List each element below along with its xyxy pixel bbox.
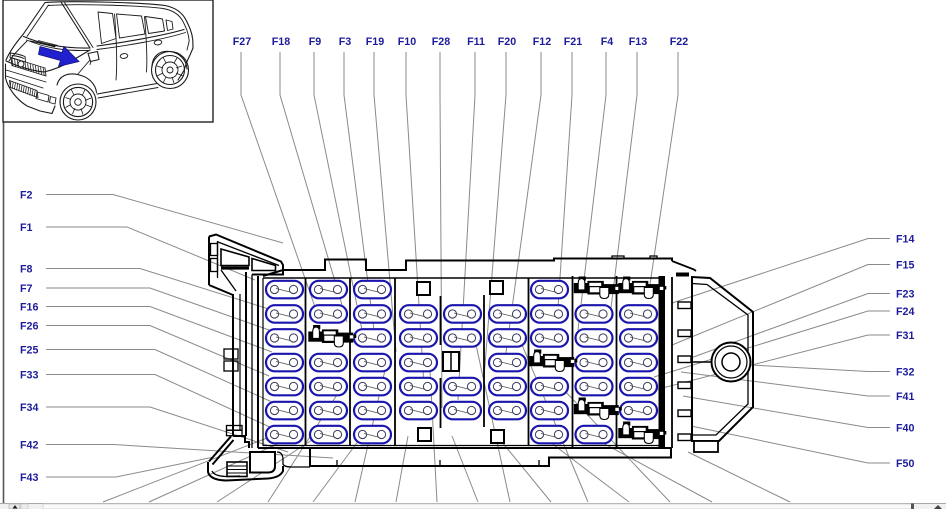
svg-text:F16: F16 bbox=[20, 302, 38, 314]
svg-text:F32: F32 bbox=[896, 367, 914, 379]
svg-text:F43: F43 bbox=[20, 472, 38, 484]
svg-text:F33: F33 bbox=[20, 370, 38, 382]
svg-text:F40: F40 bbox=[896, 423, 914, 435]
svg-text:F9: F9 bbox=[309, 36, 322, 48]
svg-text:F15: F15 bbox=[896, 260, 914, 272]
svg-text:F50: F50 bbox=[896, 458, 914, 470]
svg-text:F23: F23 bbox=[896, 289, 914, 301]
svg-text:F18: F18 bbox=[272, 36, 290, 48]
svg-text:F12: F12 bbox=[533, 36, 551, 48]
svg-text:F8: F8 bbox=[20, 264, 33, 276]
svg-text:F3: F3 bbox=[339, 36, 352, 48]
svg-text:F14: F14 bbox=[896, 234, 914, 246]
svg-text:F7: F7 bbox=[20, 283, 33, 295]
svg-text:F21: F21 bbox=[564, 36, 582, 48]
svg-text:F24: F24 bbox=[896, 306, 914, 318]
svg-text:F1: F1 bbox=[20, 222, 33, 234]
svg-text:F11: F11 bbox=[467, 36, 485, 48]
svg-text:F19: F19 bbox=[366, 36, 384, 48]
svg-text:F28: F28 bbox=[432, 36, 450, 48]
svg-text:F10: F10 bbox=[398, 36, 416, 48]
svg-text:F26: F26 bbox=[20, 321, 38, 333]
svg-text:F4: F4 bbox=[601, 36, 614, 48]
svg-text:F25: F25 bbox=[20, 345, 38, 357]
svg-text:F20: F20 bbox=[498, 36, 516, 48]
svg-text:F42: F42 bbox=[20, 440, 38, 452]
svg-text:F27: F27 bbox=[233, 36, 251, 48]
svg-text:F34: F34 bbox=[20, 402, 38, 414]
svg-text:F2: F2 bbox=[20, 190, 33, 202]
svg-text:F22: F22 bbox=[670, 36, 688, 48]
svg-text:F41: F41 bbox=[896, 391, 914, 403]
svg-text:F13: F13 bbox=[629, 36, 647, 48]
svg-text:F31: F31 bbox=[896, 330, 914, 342]
